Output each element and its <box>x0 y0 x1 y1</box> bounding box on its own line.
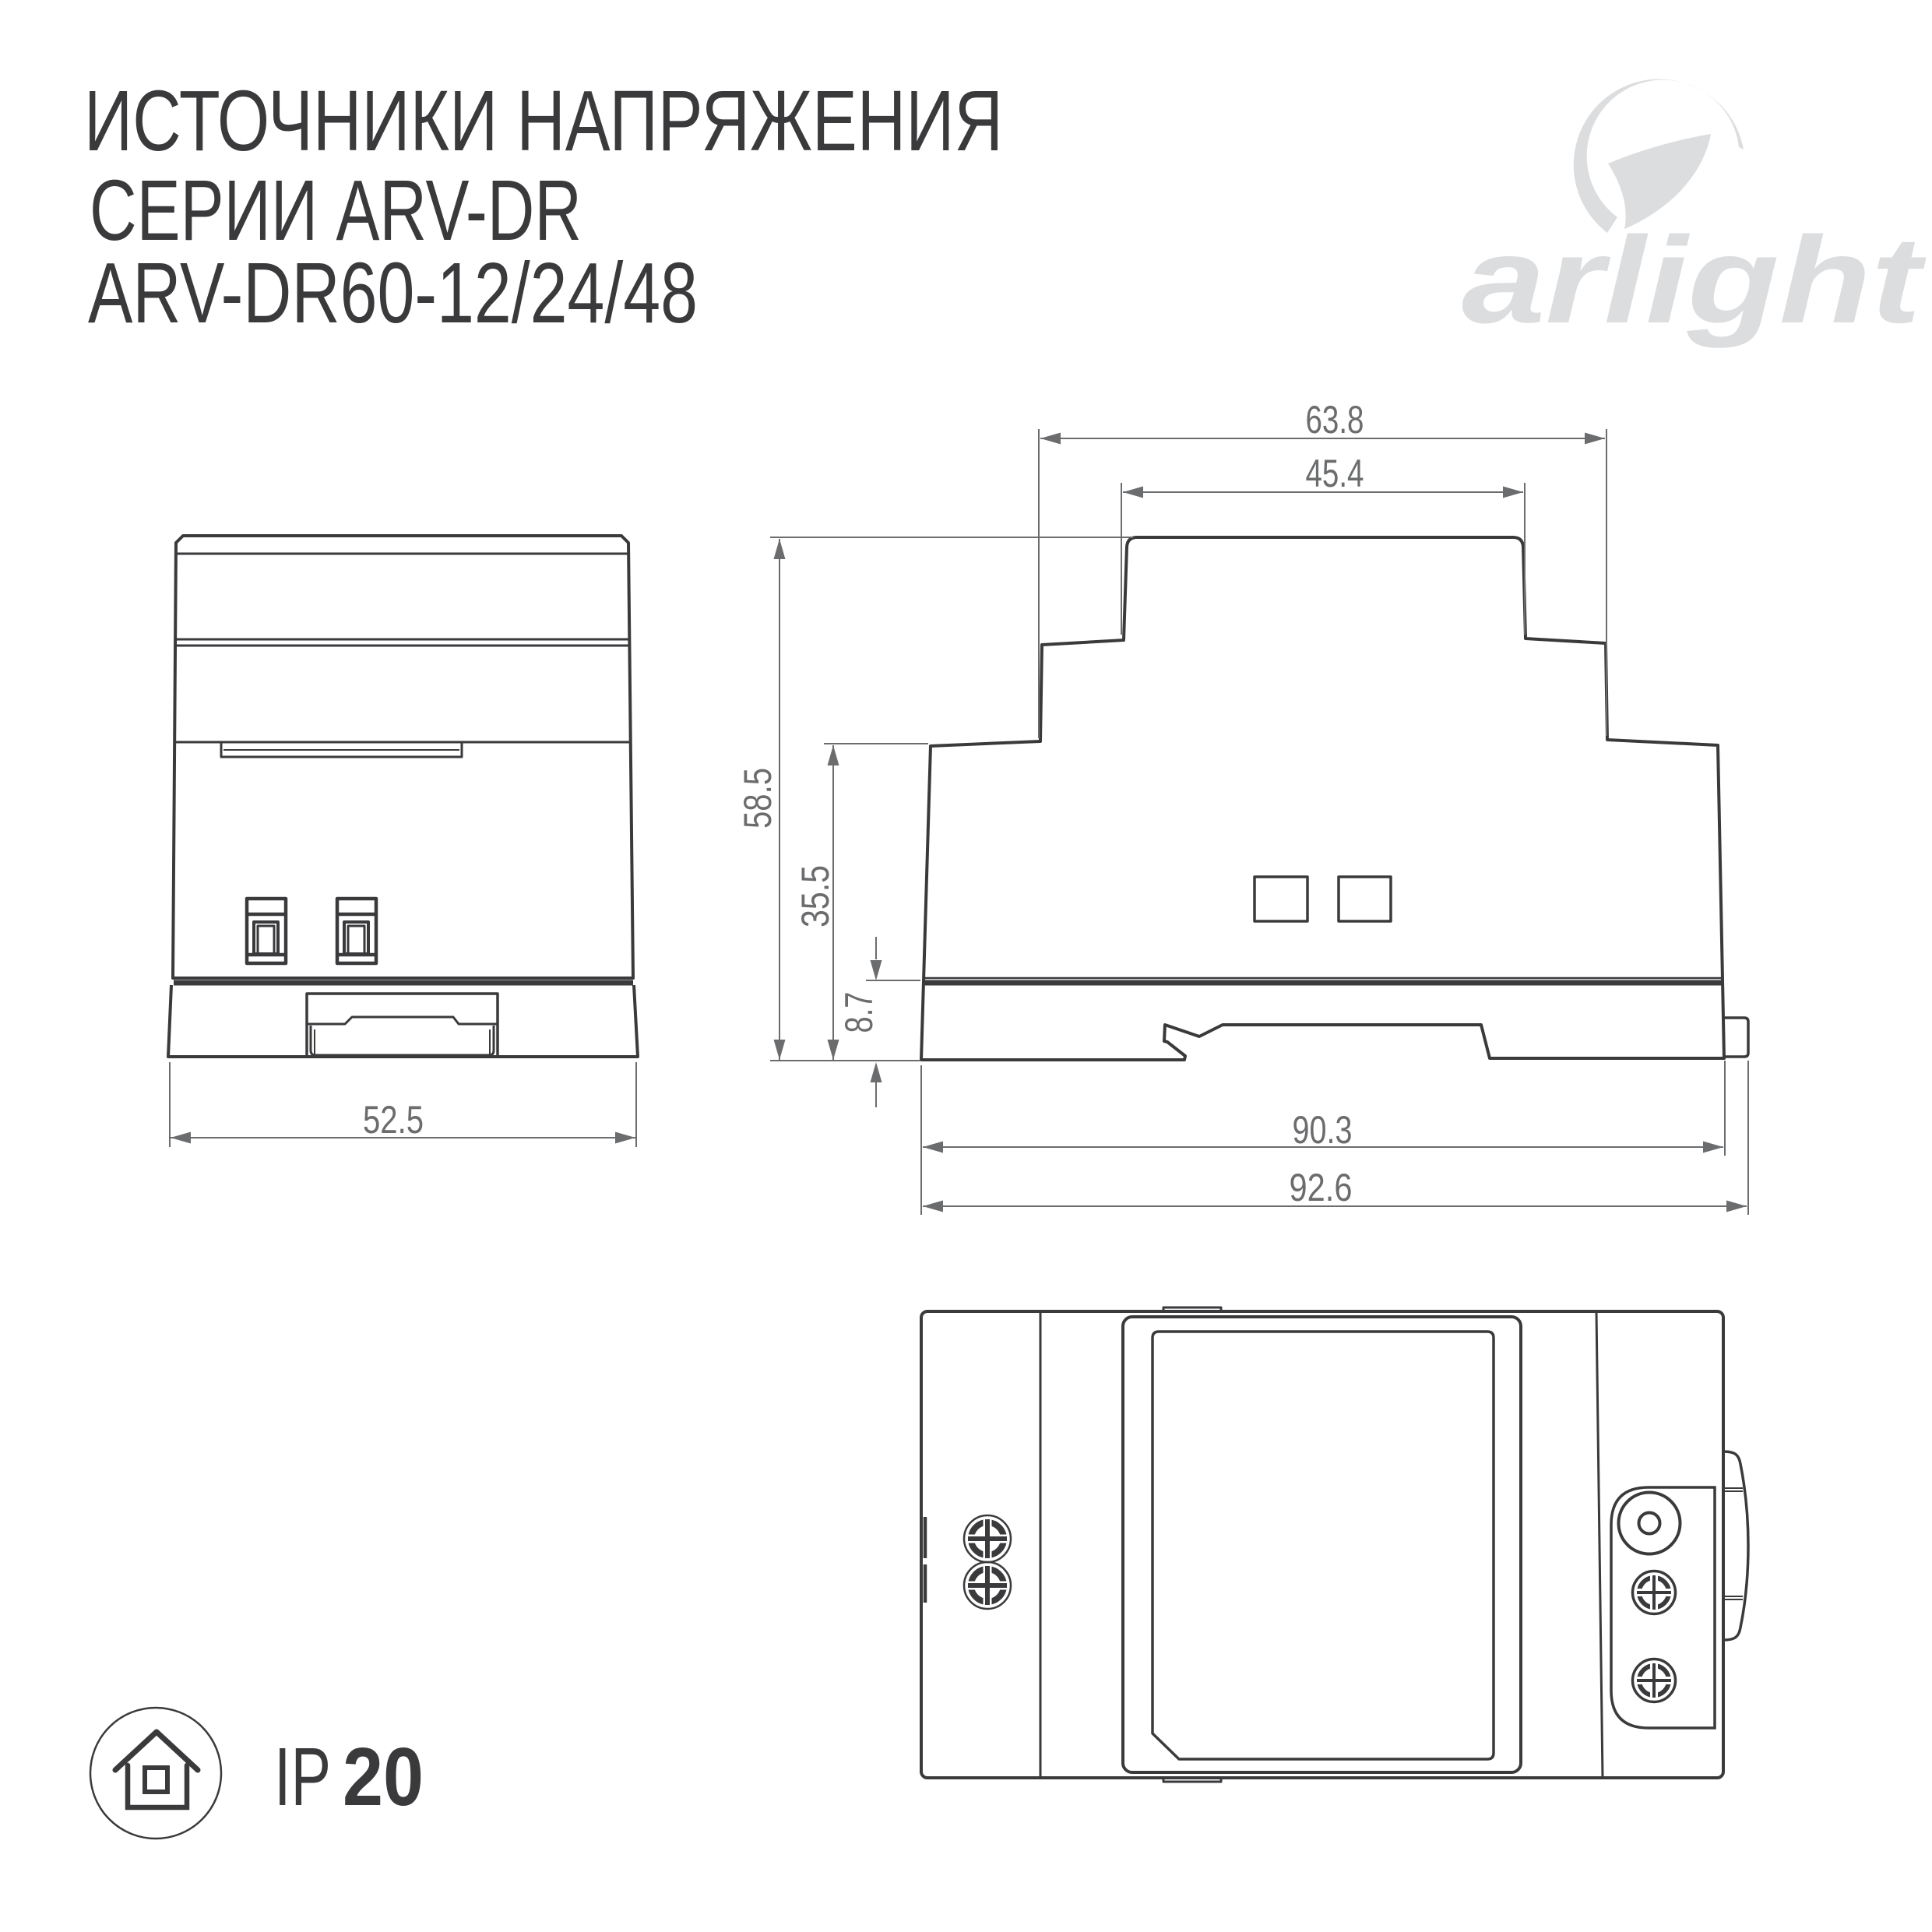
svg-text:ИСТОЧНИКИ НАПРЯЖЕНИЯ: ИСТОЧНИКИ НАПРЯЖЕНИЯ <box>84 73 1003 169</box>
svg-text:arlight: arlight <box>1462 212 1927 349</box>
svg-text:ARV-DR60-12/24/48: ARV-DR60-12/24/48 <box>88 245 698 341</box>
svg-text:45.4: 45.4 <box>1306 452 1364 495</box>
svg-text:СЕРИИ ARV-DR: СЕРИИ ARV-DR <box>90 163 582 259</box>
svg-text:52.5: 52.5 <box>363 1098 424 1142</box>
svg-text:63.8: 63.8 <box>1306 398 1364 442</box>
svg-text:90.3: 90.3 <box>1293 1108 1353 1152</box>
svg-text:20: 20 <box>343 1731 424 1823</box>
svg-text:35.5: 35.5 <box>794 865 837 927</box>
svg-text:58.5: 58.5 <box>736 768 779 829</box>
svg-text:92.6: 92.6 <box>1290 1166 1353 1209</box>
svg-text:8.7: 8.7 <box>837 992 881 1033</box>
svg-text:IP: IP <box>274 1731 331 1823</box>
